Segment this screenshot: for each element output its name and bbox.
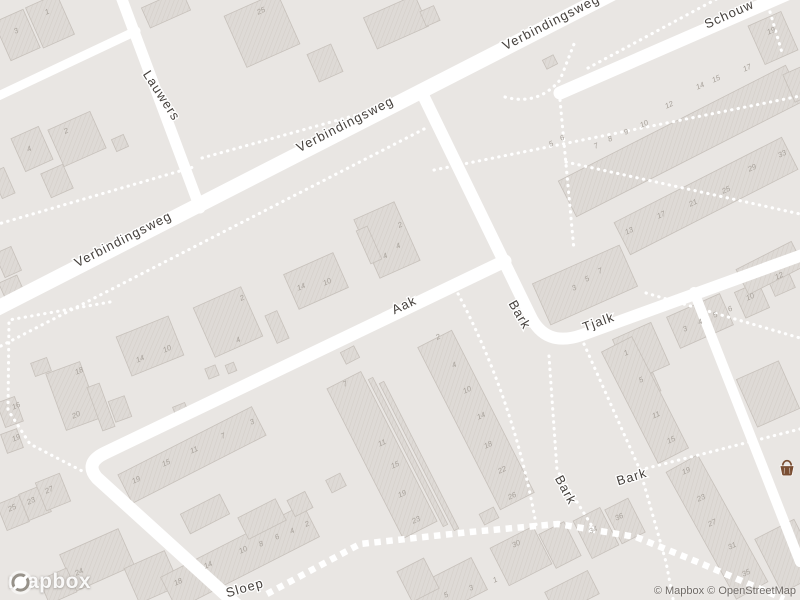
map-canvas[interactable]: 3124161925244141014102418202523272419151… (0, 0, 800, 600)
mapbox-logo-icon (8, 570, 33, 595)
map-svg[interactable]: 3124161925244141014102418202523272419151… (0, 0, 800, 600)
mapbox-logo[interactable]: mapbox (8, 570, 91, 594)
map-attribution[interactable]: © Mapbox © OpenStreetMap (654, 585, 796, 597)
